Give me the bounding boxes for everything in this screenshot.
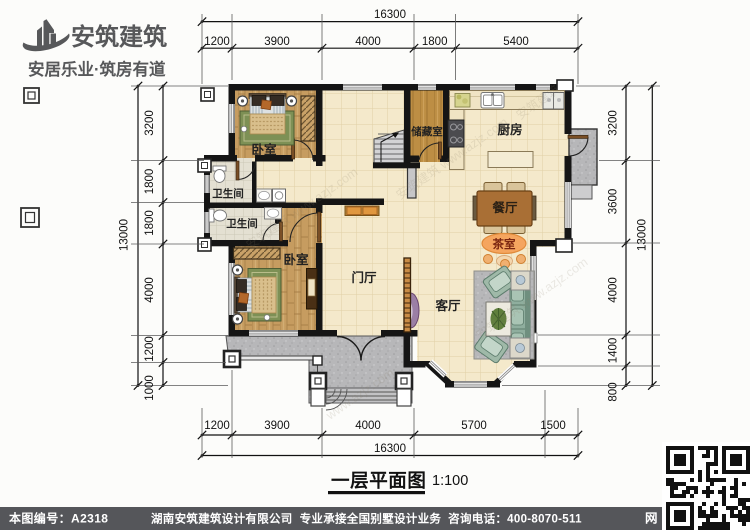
svg-text:1800: 1800 [144,210,156,236]
svg-text:4000: 4000 [144,277,156,303]
svg-text:3200: 3200 [144,110,156,136]
svg-text:800: 800 [608,382,620,401]
svg-text:3600: 3600 [608,189,620,215]
svg-text:1800: 1800 [144,169,156,195]
svg-text:茶室: 茶室 [492,237,516,251]
svg-text:本图编号：A2318: 本图编号：A2318 [9,511,108,526]
svg-text:13000: 13000 [637,219,649,251]
svg-text:3200: 3200 [608,110,620,136]
svg-text:4000: 4000 [355,420,381,432]
svg-text:16300: 16300 [374,9,406,21]
svg-text:1000: 1000 [144,375,156,401]
svg-text:16300: 16300 [374,443,406,455]
svg-text:门厅: 门厅 [351,270,377,285]
svg-text:1200: 1200 [144,336,156,362]
svg-text:1800: 1800 [422,36,448,48]
svg-text:3900: 3900 [264,420,290,432]
svg-text:卫生间: 卫生间 [226,217,258,230]
svg-text:1500: 1500 [540,420,566,432]
svg-text:安筑建筑: 安筑建筑 [71,23,167,51]
svg-text:5700: 5700 [461,420,487,432]
svg-text:湖南安筑建筑设计有限公司 专业承接全国别墅设计业务 咨询: 湖南安筑建筑设计有限公司 专业承接全国别墅设计业务 咨询电话：400-8070-… [151,512,582,526]
svg-text:一层平面图: 一层平面图 [331,470,427,491]
svg-text:网: 网 [645,512,658,526]
svg-text:餐厅: 餐厅 [491,200,518,215]
svg-text:客厅: 客厅 [434,298,461,313]
svg-text:1200: 1200 [204,36,230,48]
svg-text:4000: 4000 [608,277,620,303]
svg-text:1:100: 1:100 [432,473,468,489]
svg-text:4000: 4000 [355,36,381,48]
svg-text:卧室: 卧室 [283,252,309,267]
svg-text:1200: 1200 [204,420,230,432]
svg-text:卧室: 卧室 [251,142,277,157]
svg-text:卫生间: 卫生间 [212,187,244,200]
svg-text:5400: 5400 [503,36,529,48]
svg-text:3900: 3900 [264,36,290,48]
svg-text:13000: 13000 [119,219,131,251]
svg-text:1400: 1400 [608,338,620,364]
svg-text:安居乐业·筑房有道: 安居乐业·筑房有道 [28,59,166,79]
svg-text:储藏室: 储藏室 [411,125,443,138]
